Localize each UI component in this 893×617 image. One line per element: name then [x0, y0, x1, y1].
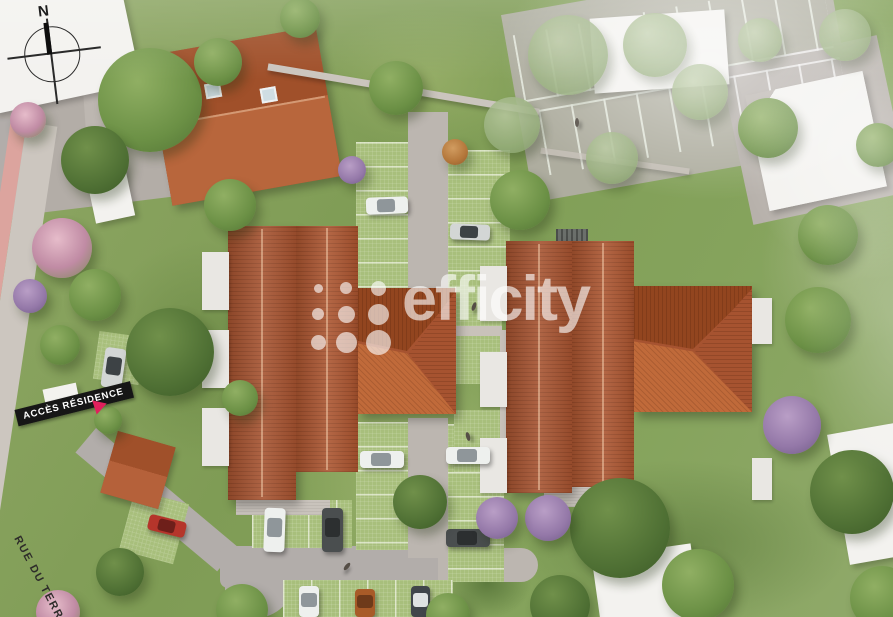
- efficity-dot: [371, 281, 386, 296]
- efficity-dots-logo-icon: [306, 272, 398, 356]
- efficity-dot: [312, 308, 324, 320]
- tree: [623, 13, 687, 77]
- tree: [856, 123, 893, 167]
- efficity-dot: [311, 335, 326, 350]
- tree: [490, 170, 550, 230]
- tree: [13, 279, 47, 313]
- tree: [738, 98, 798, 158]
- car: [263, 508, 286, 553]
- tree: [530, 575, 590, 617]
- skylight: [260, 86, 278, 104]
- tree: [785, 287, 851, 353]
- car: [360, 451, 404, 468]
- car: [450, 223, 491, 240]
- efficity-dot: [336, 332, 357, 353]
- car-glass: [301, 593, 316, 607]
- tree: [393, 475, 447, 529]
- car-glass: [376, 199, 395, 213]
- tree: [672, 64, 728, 120]
- building-2-wing-east: [634, 286, 752, 412]
- tree: [763, 396, 821, 454]
- watermark-brand-text: efficity: [402, 268, 589, 331]
- balcony: [480, 352, 507, 407]
- tree: [586, 132, 638, 184]
- balcony: [752, 458, 772, 500]
- tree: [484, 97, 540, 153]
- car-glass: [266, 517, 283, 537]
- tree: [126, 308, 214, 396]
- car: [366, 196, 409, 214]
- tree: [528, 15, 608, 95]
- tree: [96, 548, 144, 596]
- car-glass: [413, 593, 427, 607]
- balcony: [202, 252, 229, 310]
- tree: [69, 269, 121, 321]
- car: [299, 586, 319, 617]
- balcony: [202, 408, 229, 466]
- tree: [442, 139, 468, 165]
- tree: [194, 38, 242, 86]
- efficity-dot: [366, 330, 391, 355]
- tree: [369, 61, 423, 115]
- car-glass: [156, 518, 176, 534]
- compass: N: [4, 0, 104, 107]
- car-glass: [325, 518, 341, 538]
- efficity-dot: [340, 282, 352, 294]
- tree: [662, 549, 734, 617]
- compass-north-label: N: [37, 2, 50, 20]
- tree: [338, 156, 366, 184]
- tree: [222, 380, 258, 416]
- tree: [810, 450, 893, 534]
- car-glass: [460, 226, 478, 239]
- car-glass: [457, 449, 477, 462]
- person: [575, 118, 579, 127]
- roof-ridge: [261, 229, 263, 498]
- site-plan-aerial-rendering: N ACCÈS RÉSIDENCE RUE DU TERRIAL efficit…: [0, 0, 893, 617]
- efficity-dot: [368, 304, 389, 325]
- tree: [40, 325, 80, 365]
- tree: [525, 495, 571, 541]
- tree: [204, 179, 256, 231]
- efficity-dot: [314, 284, 323, 293]
- car-glass: [371, 453, 391, 466]
- car: [446, 447, 490, 464]
- tree: [476, 497, 518, 539]
- tree: [32, 218, 92, 278]
- car-glass: [357, 595, 372, 608]
- balcony: [752, 298, 772, 344]
- tree: [798, 205, 858, 265]
- tree: [738, 18, 782, 62]
- car-glass: [457, 531, 477, 545]
- car: [355, 589, 375, 617]
- tree: [819, 9, 871, 61]
- tree: [61, 126, 129, 194]
- watermark: efficity: [306, 272, 626, 356]
- tree: [850, 566, 893, 617]
- efficity-dot: [338, 306, 355, 323]
- building-1-wing-west: [228, 226, 296, 500]
- car-glass: [105, 356, 123, 376]
- car: [322, 508, 343, 552]
- tree: [10, 102, 46, 138]
- tree: [570, 478, 670, 578]
